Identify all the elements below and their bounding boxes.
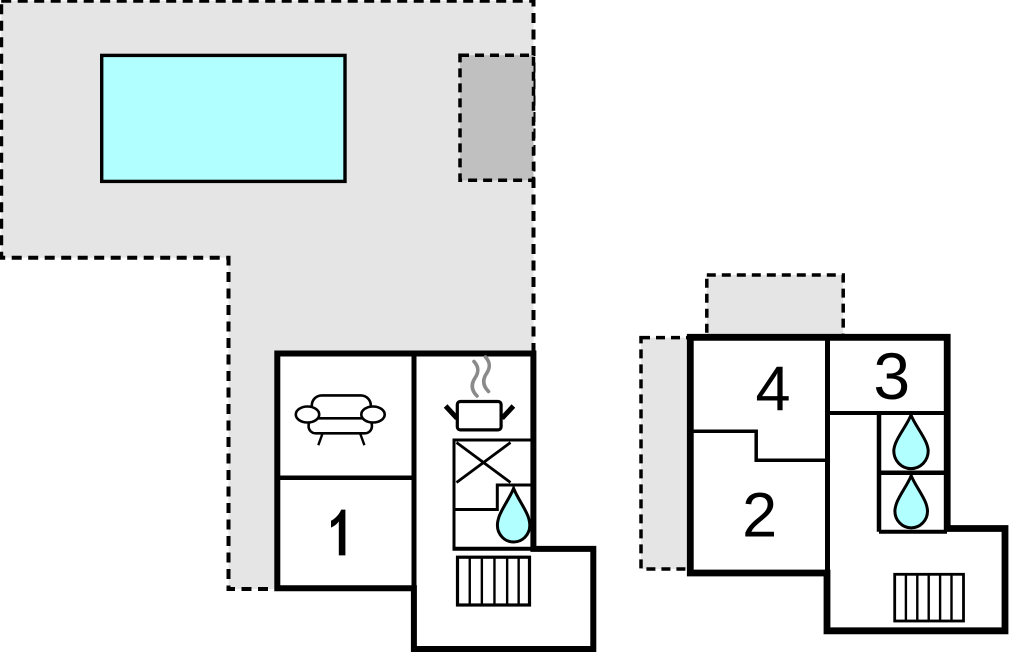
svg-text:2: 2: [742, 481, 777, 551]
svg-text:3: 3: [873, 339, 910, 413]
svg-text:4: 4: [755, 355, 790, 425]
